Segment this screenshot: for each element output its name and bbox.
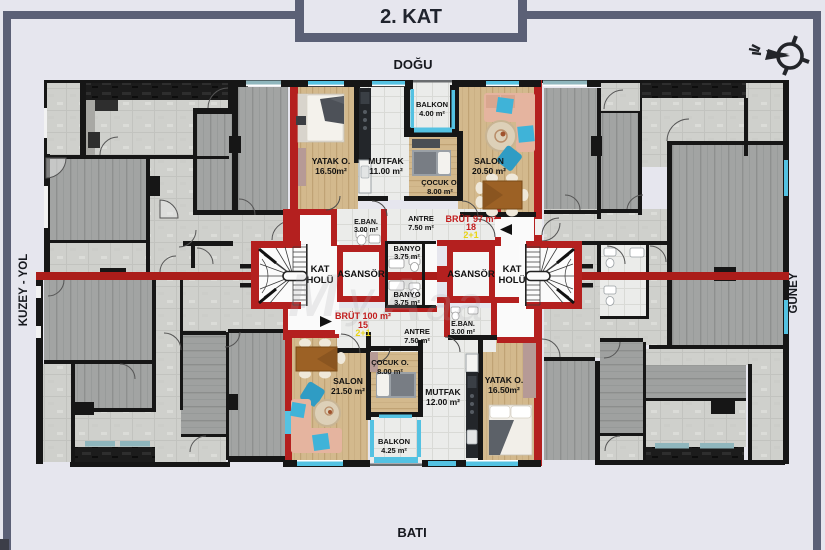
svg-text:YATAK O.: YATAK O. [485, 375, 524, 385]
svg-text:4.25 m²: 4.25 m² [381, 446, 407, 455]
svg-text:E.BAN.: E.BAN. [354, 219, 378, 226]
svg-text:ÇOCUK O.: ÇOCUK O. [371, 358, 409, 367]
svg-text:MUTFAK: MUTFAK [425, 387, 461, 397]
svg-text:2. KAT: 2. KAT [380, 6, 442, 28]
svg-text:4.00 m²: 4.00 m² [419, 109, 445, 118]
svg-text:21.50 m²: 21.50 m² [331, 386, 365, 396]
svg-text:SALON: SALON [333, 376, 363, 386]
svg-text:3.75 m²: 3.75 m² [394, 298, 420, 307]
svg-text:ANTRE: ANTRE [408, 214, 434, 223]
svg-text:KUZEY - YOL: KUZEY - YOL [18, 254, 30, 326]
svg-text:MUTFAK: MUTFAK [368, 156, 404, 166]
svg-text:BALKON: BALKON [416, 100, 448, 109]
svg-text:16.50m²: 16.50m² [315, 166, 347, 176]
svg-text:BATI: BATI [397, 525, 426, 540]
svg-text:DOĞU: DOĞU [394, 57, 433, 72]
svg-text:KAT: KAT [503, 264, 522, 275]
svg-text:7.50 m²: 7.50 m² [404, 336, 430, 345]
svg-text:16.50m²: 16.50m² [488, 385, 520, 395]
svg-text:12.00 m²: 12.00 m² [426, 397, 460, 407]
svg-text:ÇOCUK O.: ÇOCUK O. [421, 178, 459, 187]
svg-text:3.00 m²: 3.00 m² [354, 227, 379, 234]
svg-text:HOLÜ: HOLÜ [499, 275, 526, 286]
svg-text:YATAK O.: YATAK O. [312, 156, 351, 166]
svg-text:8.00 m²: 8.00 m² [377, 367, 403, 376]
svg-text:M: M [288, 262, 340, 329]
svg-text:8.00 m²: 8.00 m² [427, 187, 453, 196]
svg-text:ANTRE: ANTRE [404, 327, 430, 336]
svg-text:11.00 m²: 11.00 m² [369, 166, 403, 176]
svg-text:20.50 m²: 20.50 m² [472, 166, 506, 176]
svg-text:2+1: 2+1 [463, 230, 478, 240]
svg-text:3.75 m²: 3.75 m² [394, 252, 420, 261]
svg-text:SALON: SALON [474, 156, 504, 166]
svg-text:7.50 m²: 7.50 m² [408, 223, 434, 232]
svg-text:3.00 m²: 3.00 m² [451, 329, 476, 336]
svg-text:E.BAN.: E.BAN. [451, 321, 475, 328]
svg-text:2+1: 2+1 [355, 328, 370, 338]
svg-text:a: a [426, 278, 453, 331]
svg-text:BALKON: BALKON [378, 437, 410, 446]
